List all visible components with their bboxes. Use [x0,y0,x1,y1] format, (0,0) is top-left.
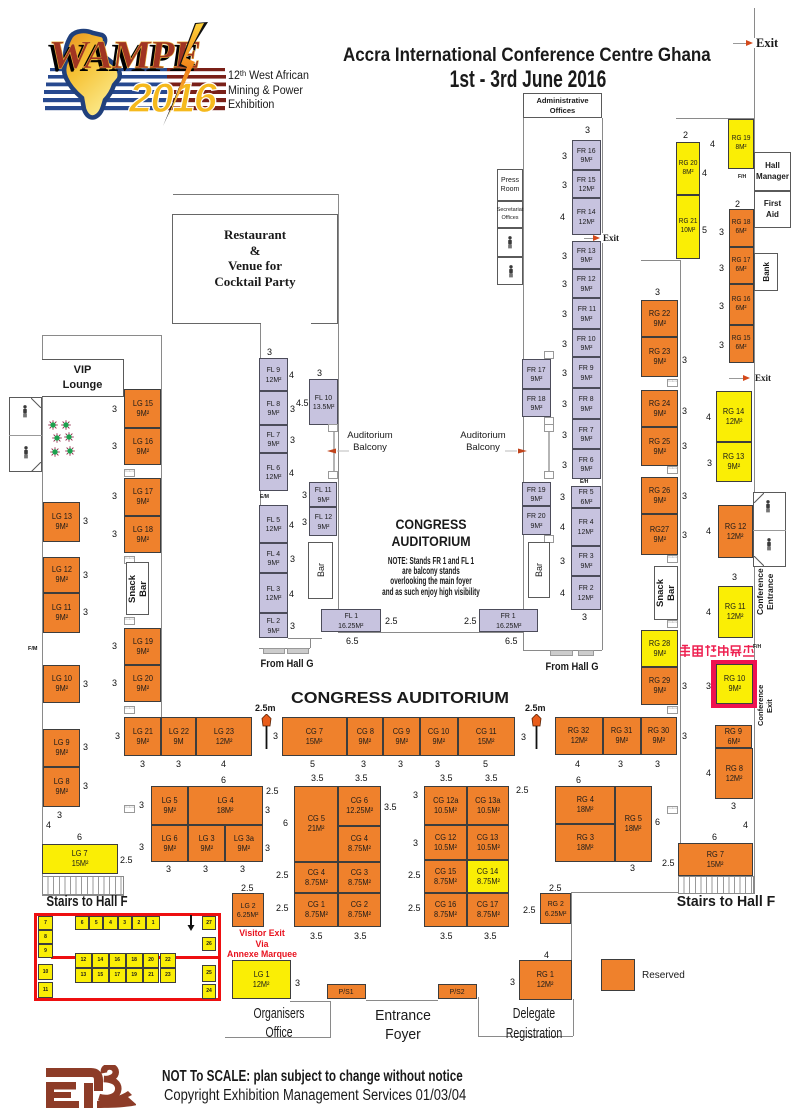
svg-text:WAMPE: WAMPE [46,32,204,77]
svg-text:2016: 2016 [128,74,218,121]
